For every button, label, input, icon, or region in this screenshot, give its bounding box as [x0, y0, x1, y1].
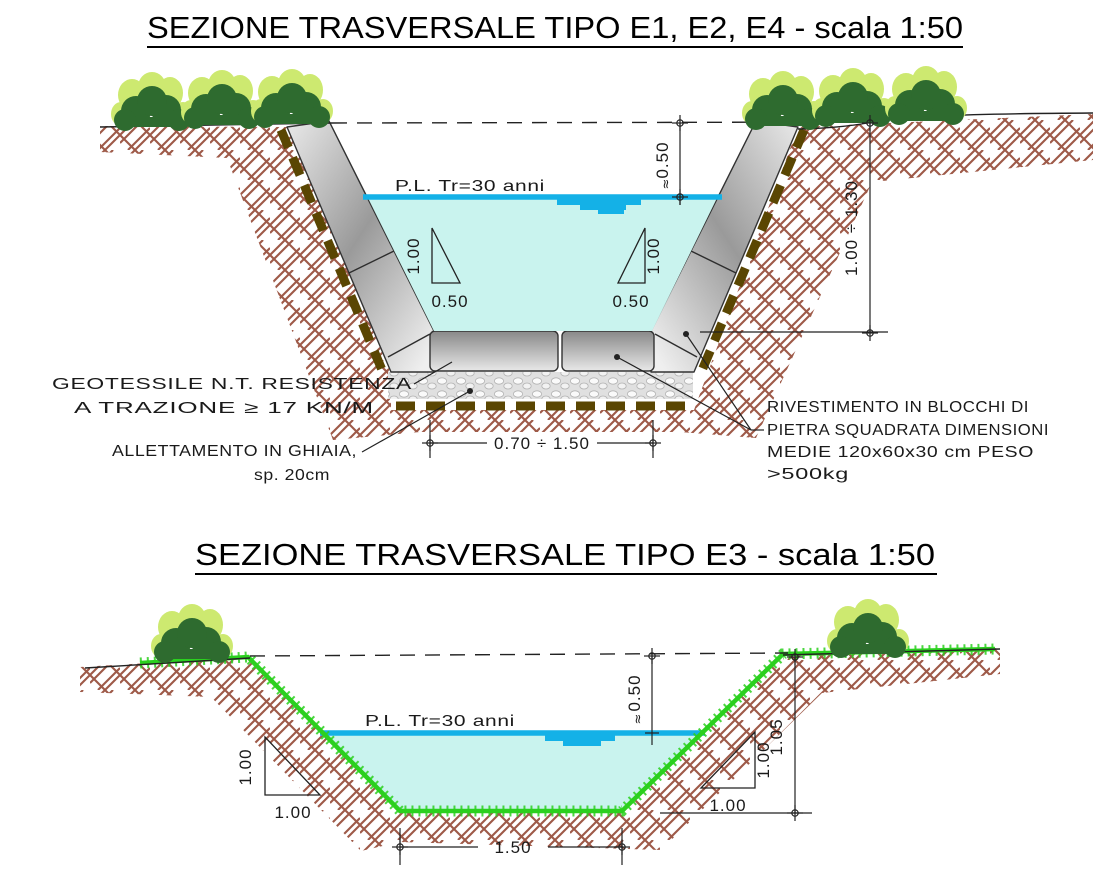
slope-rise-label: 1.00 [644, 237, 663, 274]
note-bedding-line2: sp. 20cm [254, 467, 330, 484]
bottom-stone-right [562, 331, 654, 371]
note-revetment-line3: MEDIE 120x60x30 cm PESO [767, 444, 1034, 461]
slope-run-label: 0.50 [431, 292, 468, 311]
bottom-width-value: 0.70 ÷ 1.50 [494, 434, 590, 453]
slope-run-label: 1.00 [709, 796, 746, 815]
note-geotextile-line2: A TRAZIONE ≥ 17 KN/M [74, 400, 374, 417]
note-geotextile-line1: GEOTESSILE N.T. RESISTENZA [52, 376, 412, 393]
section-1-drawing: SEZIONE TRASVERSALE TIPO E1, E2, E4 - sc… [0, 0, 1095, 510]
approx-symbol: ≈ [659, 179, 674, 190]
bushes-left-1 [111, 69, 333, 131]
note-revetment-line2: PIETRA SQUADRATA DIMENSIONI [767, 422, 1049, 439]
bottom-width-value: 1.50 [494, 838, 531, 857]
drawing-sheet: SEZIONE TRASVERSALE TIPO E1, E2, E4 - sc… [0, 0, 1095, 873]
bushes-right-1 [742, 66, 967, 130]
slope-rise-label: 1.00 [236, 748, 255, 785]
leader-dot-revetment-a [683, 331, 689, 337]
gravel-bed [388, 372, 693, 399]
freeboard-value: 0.50 [653, 141, 672, 178]
bottom-stone-left [430, 331, 558, 371]
bush-right-2 [827, 599, 909, 658]
ground-projection-dashed-2 [250, 653, 788, 656]
note-bedding-line1: ALLETTAMENTO IN GHIAIA, [112, 443, 357, 460]
approx-symbol: ≈ [631, 714, 646, 725]
depth-value: 1.00 ÷ 1.30 [842, 180, 861, 276]
note-revetment-line4: >500kg [767, 466, 849, 483]
leader-dot-revetment-b [614, 354, 620, 360]
freeboard-value: 0.50 [625, 674, 644, 711]
slope-run-label: 0.50 [612, 292, 649, 311]
slope-rise-label: 1.00 [404, 237, 423, 274]
water-level-label-1: P.L. Tr=30 anni [395, 178, 545, 195]
section-2-title: SEZIONE TRASVERSALE TIPO E3 - scala 1:50 [195, 537, 935, 572]
section-1-title: SEZIONE TRASVERSALE TIPO E1, E2, E4 - sc… [147, 10, 963, 45]
note-revetment-line1: RIVESTIMENTO IN BLOCCHI DI [767, 399, 1029, 416]
leader-dot-bedding [467, 388, 473, 394]
water-level-label-2: P.L. Tr=30 anni [365, 713, 515, 730]
dim-freeboard-1: 0.50 ≈ [653, 115, 688, 205]
section-2-drawing: SEZIONE TRASVERSALE TIPO E3 - scala 1:50… [0, 510, 1095, 873]
slope-run-label: 1.00 [274, 803, 311, 822]
depth-value: 1.05 [767, 718, 786, 755]
bush-left-2 [151, 604, 233, 663]
